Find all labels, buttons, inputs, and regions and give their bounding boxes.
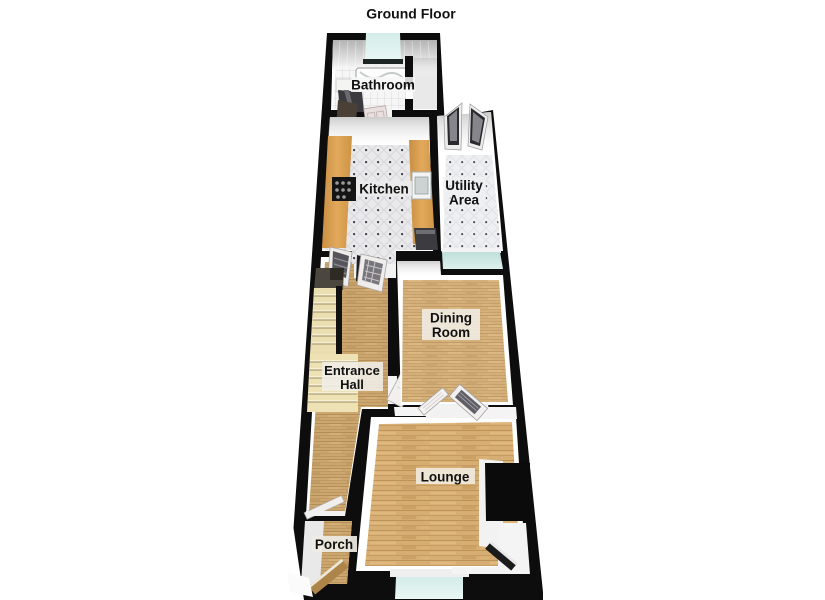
- svg-text:Area: Area: [449, 193, 480, 208]
- svg-text:Ground Floor: Ground Floor: [366, 6, 456, 22]
- svg-text:Hall: Hall: [340, 377, 364, 392]
- svg-text:Porch: Porch: [315, 537, 353, 552]
- svg-text:Room: Room: [432, 325, 470, 340]
- svg-text:Dining: Dining: [430, 311, 472, 326]
- svg-text:Entrance: Entrance: [324, 363, 380, 378]
- svg-text:Kitchen: Kitchen: [359, 182, 409, 197]
- svg-text:Lounge: Lounge: [421, 470, 470, 485]
- svg-text:Utility: Utility: [445, 178, 483, 193]
- svg-text:Bathroom: Bathroom: [351, 78, 415, 93]
